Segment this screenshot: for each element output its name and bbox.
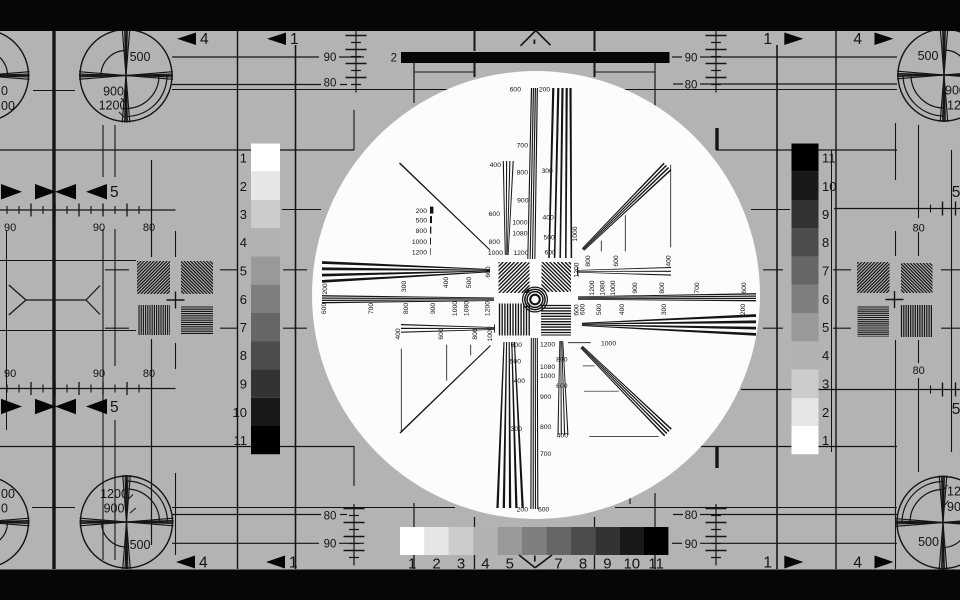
svg-text:5: 5: [822, 320, 829, 335]
svg-text:800: 800: [472, 328, 479, 340]
svg-text:3: 3: [240, 207, 247, 222]
svg-text:80: 80: [685, 80, 698, 92]
svg-text:4: 4: [240, 235, 247, 250]
svg-text:5: 5: [110, 399, 119, 416]
svg-text:400: 400: [557, 433, 569, 440]
svg-text:90: 90: [93, 368, 105, 380]
svg-text:1200: 1200: [99, 99, 127, 113]
svg-text:1200: 1200: [589, 280, 596, 295]
svg-text:1000: 1000: [488, 250, 503, 257]
svg-text:4: 4: [200, 31, 209, 48]
svg-text:600: 600: [556, 383, 568, 390]
svg-text:80: 80: [685, 510, 698, 522]
svg-text:300: 300: [401, 281, 408, 293]
svg-text:1200: 1200: [947, 99, 960, 113]
svg-text:2: 2: [822, 405, 829, 420]
svg-text:700: 700: [368, 303, 375, 315]
svg-text:0: 0: [1, 502, 8, 516]
svg-text:1080: 1080: [512, 231, 527, 238]
svg-text:90: 90: [324, 52, 337, 64]
svg-text:500: 500: [130, 50, 151, 64]
svg-text:200: 200: [517, 507, 529, 514]
svg-text:200: 200: [539, 87, 551, 94]
svg-text:1200: 1200: [100, 487, 128, 501]
svg-text:1: 1: [290, 31, 299, 48]
svg-text:600: 600: [545, 250, 557, 257]
svg-text:5: 5: [952, 184, 960, 201]
svg-text:600: 600: [438, 328, 445, 340]
svg-text:10: 10: [822, 179, 836, 194]
svg-text:600: 600: [321, 303, 328, 315]
svg-text:600: 600: [511, 342, 523, 349]
svg-text:80: 80: [324, 511, 337, 523]
svg-text:1200: 1200: [947, 485, 960, 499]
svg-text:500: 500: [466, 277, 473, 289]
svg-text:80: 80: [913, 223, 925, 235]
svg-text:800: 800: [659, 282, 666, 294]
svg-text:900: 900: [517, 198, 529, 205]
svg-text:8: 8: [822, 235, 829, 250]
svg-text:1080: 1080: [600, 280, 607, 295]
svg-text:500: 500: [416, 217, 428, 224]
svg-text:00: 00: [1, 99, 15, 113]
svg-text:500: 500: [918, 535, 939, 549]
svg-text:200: 200: [416, 208, 428, 215]
svg-text:400: 400: [490, 162, 502, 169]
svg-text:900: 900: [103, 85, 124, 99]
svg-text:300: 300: [511, 426, 523, 433]
svg-text:600: 600: [613, 255, 620, 267]
svg-text:2: 2: [240, 179, 247, 194]
svg-text:1000: 1000: [540, 373, 555, 380]
svg-text:1000: 1000: [487, 326, 494, 341]
svg-text:500: 500: [130, 538, 151, 552]
svg-text:80: 80: [324, 78, 337, 90]
svg-text:90: 90: [4, 368, 16, 380]
svg-text:500: 500: [918, 49, 939, 63]
svg-text:1000: 1000: [601, 341, 616, 348]
svg-text:11: 11: [234, 433, 248, 448]
svg-text:1000: 1000: [512, 220, 527, 227]
svg-text:1000: 1000: [412, 239, 427, 246]
svg-text:1200: 1200: [485, 301, 492, 316]
svg-text:900: 900: [540, 394, 552, 401]
svg-text:5: 5: [952, 401, 960, 418]
svg-text:500: 500: [510, 359, 522, 366]
svg-text:400: 400: [514, 378, 526, 385]
svg-text:0: 0: [1, 84, 8, 98]
svg-text:1: 1: [763, 555, 772, 572]
svg-text:1200: 1200: [540, 342, 555, 349]
svg-text:90: 90: [324, 539, 337, 551]
svg-text:80: 80: [143, 368, 155, 380]
svg-text:900: 900: [947, 500, 960, 514]
svg-text:400: 400: [543, 215, 555, 222]
svg-text:4: 4: [853, 31, 862, 48]
svg-text:1: 1: [763, 31, 772, 48]
svg-text:90: 90: [4, 222, 16, 234]
svg-text:1080: 1080: [540, 364, 555, 371]
svg-text:800: 800: [585, 255, 592, 267]
svg-text:400: 400: [619, 304, 626, 316]
svg-text:10: 10: [233, 405, 247, 420]
svg-text:8: 8: [240, 348, 247, 363]
svg-text:600: 600: [538, 507, 550, 514]
svg-text:800: 800: [489, 239, 501, 246]
svg-text:4: 4: [853, 555, 862, 572]
svg-text:3: 3: [822, 377, 829, 392]
svg-text:4: 4: [199, 555, 208, 572]
svg-text:900: 900: [430, 303, 437, 315]
svg-text:800: 800: [517, 170, 529, 177]
svg-text:7: 7: [822, 264, 829, 279]
svg-text:5: 5: [240, 264, 247, 279]
svg-text:600: 600: [574, 304, 581, 316]
svg-text:600: 600: [580, 304, 587, 316]
svg-text:400: 400: [443, 277, 450, 289]
svg-text:9: 9: [822, 207, 829, 222]
svg-text:300: 300: [661, 304, 668, 316]
svg-text:1200: 1200: [412, 249, 427, 256]
svg-text:700: 700: [694, 282, 701, 294]
svg-text:80: 80: [143, 222, 155, 234]
svg-text:500: 500: [596, 304, 603, 316]
svg-text:80: 80: [913, 365, 925, 377]
svg-text:900: 900: [632, 282, 639, 294]
svg-text:700: 700: [517, 143, 529, 150]
svg-text:1: 1: [822, 433, 829, 448]
svg-text:600: 600: [510, 87, 522, 94]
svg-text:900: 900: [104, 502, 125, 516]
svg-text:1000: 1000: [610, 280, 617, 295]
svg-text:800: 800: [556, 357, 568, 364]
svg-text:400: 400: [666, 255, 673, 267]
svg-text:11: 11: [822, 151, 836, 166]
svg-text:1000: 1000: [452, 301, 459, 316]
svg-text:5: 5: [110, 184, 119, 201]
svg-text:90: 90: [685, 53, 698, 65]
svg-text:600: 600: [489, 211, 501, 218]
svg-text:400: 400: [395, 328, 402, 340]
svg-text:6: 6: [822, 292, 829, 307]
svg-text:7: 7: [240, 320, 247, 335]
svg-text:200: 200: [740, 304, 747, 316]
svg-text:1: 1: [240, 151, 247, 166]
svg-text:1000: 1000: [572, 226, 579, 241]
svg-text:500: 500: [544, 235, 556, 242]
svg-text:800: 800: [403, 303, 410, 315]
svg-text:1200: 1200: [513, 250, 528, 257]
svg-text:700: 700: [540, 451, 552, 458]
svg-text:1200: 1200: [574, 262, 581, 277]
svg-text:6: 6: [240, 292, 247, 307]
svg-text:800: 800: [540, 424, 552, 431]
svg-text:600: 600: [741, 282, 748, 294]
svg-text:90: 90: [685, 539, 698, 551]
svg-text:4: 4: [822, 348, 829, 363]
svg-text:300: 300: [542, 168, 554, 175]
svg-text:00: 00: [1, 487, 15, 501]
svg-text:9: 9: [240, 377, 247, 392]
svg-text:200: 200: [322, 283, 329, 295]
svg-text:90: 90: [93, 222, 105, 234]
svg-text:1080: 1080: [464, 301, 471, 316]
svg-text:800: 800: [416, 228, 428, 235]
svg-text:1: 1: [289, 555, 298, 572]
svg-text:2: 2: [391, 53, 397, 65]
svg-text:900: 900: [945, 84, 960, 98]
svg-text:600: 600: [485, 266, 492, 278]
